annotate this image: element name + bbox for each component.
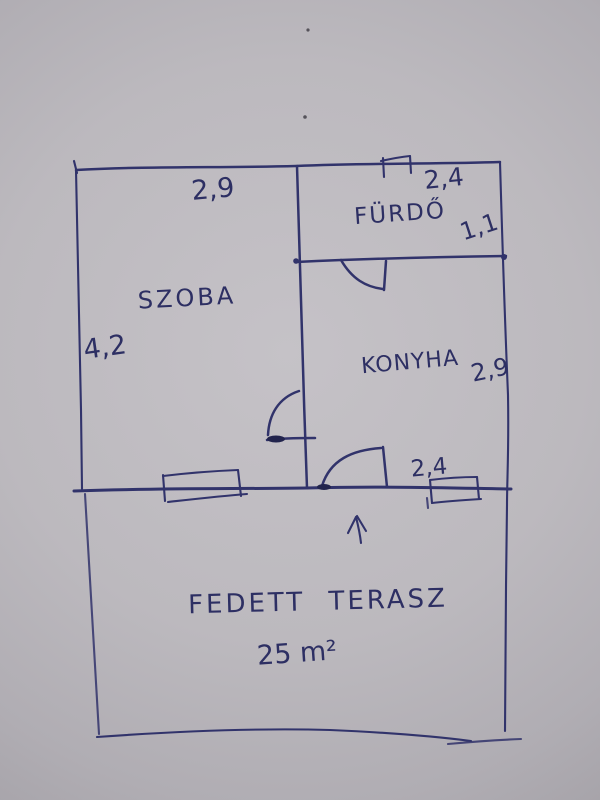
room-label-terasz: FEDETT TERASZ (188, 584, 449, 621)
door-terasz (317, 447, 387, 490)
floor-plan-drawing: 2,9 2,4 FÜRDŐ 1,1 SZOBA 4,2 KONYHA 2,9 2… (0, 0, 600, 800)
dim-szoba-height: 4,2 (82, 329, 129, 366)
window-furdo (381, 156, 411, 177)
labels: 2,9 2,4 FÜRDŐ 1,1 SZOBA 4,2 KONYHA 2,9 2… (82, 162, 512, 672)
window-konyha (427, 477, 481, 508)
wall-left (76, 170, 82, 489)
room-label-konyha: KONYHA (360, 346, 460, 379)
window-szoba (163, 470, 247, 502)
paper-sheet: 2,9 2,4 FÜRDŐ 1,1 SZOBA 4,2 KONYHA 2,9 2… (0, 0, 600, 800)
room-label-szoba: SZOBA (137, 281, 237, 314)
dim-szoba-width: 2,9 (190, 172, 235, 207)
door-szoba (267, 391, 315, 443)
door-furdo-arc (341, 260, 383, 289)
wall-terrace-bottom (97, 729, 471, 741)
door-terasz-hinge-blob (317, 484, 331, 490)
dim-furdo-height: 1,1 (457, 208, 502, 246)
wall-joint-dot (501, 254, 507, 260)
wall-house-bottom (74, 487, 511, 491)
door-terasz-arc (322, 448, 381, 486)
dim-furdo-width: 2,4 (423, 162, 466, 195)
paper-speck (303, 115, 307, 119)
wall-right (500, 162, 508, 731)
wall-middle-vertical (297, 166, 307, 488)
paper-speck (306, 28, 309, 31)
dim-konyha-height: 2,9 (468, 352, 511, 387)
door-furdo (341, 260, 386, 290)
entrance-arrow-icon (348, 516, 366, 543)
door-furdo-leaf (384, 261, 386, 290)
wall-terrace-left (85, 494, 99, 734)
door-szoba-hinge-blob (267, 436, 285, 443)
wall-furdo-bottom (296, 256, 506, 262)
dim-entrance-width: 2,4 (410, 453, 449, 482)
dim-terasz-area: 25 m² (256, 635, 338, 672)
room-label-furdo: FÜRDŐ (353, 196, 447, 230)
door-szoba-arc (268, 391, 299, 435)
door-terasz-leaf (383, 447, 387, 487)
wall-joint-dot (293, 258, 299, 264)
